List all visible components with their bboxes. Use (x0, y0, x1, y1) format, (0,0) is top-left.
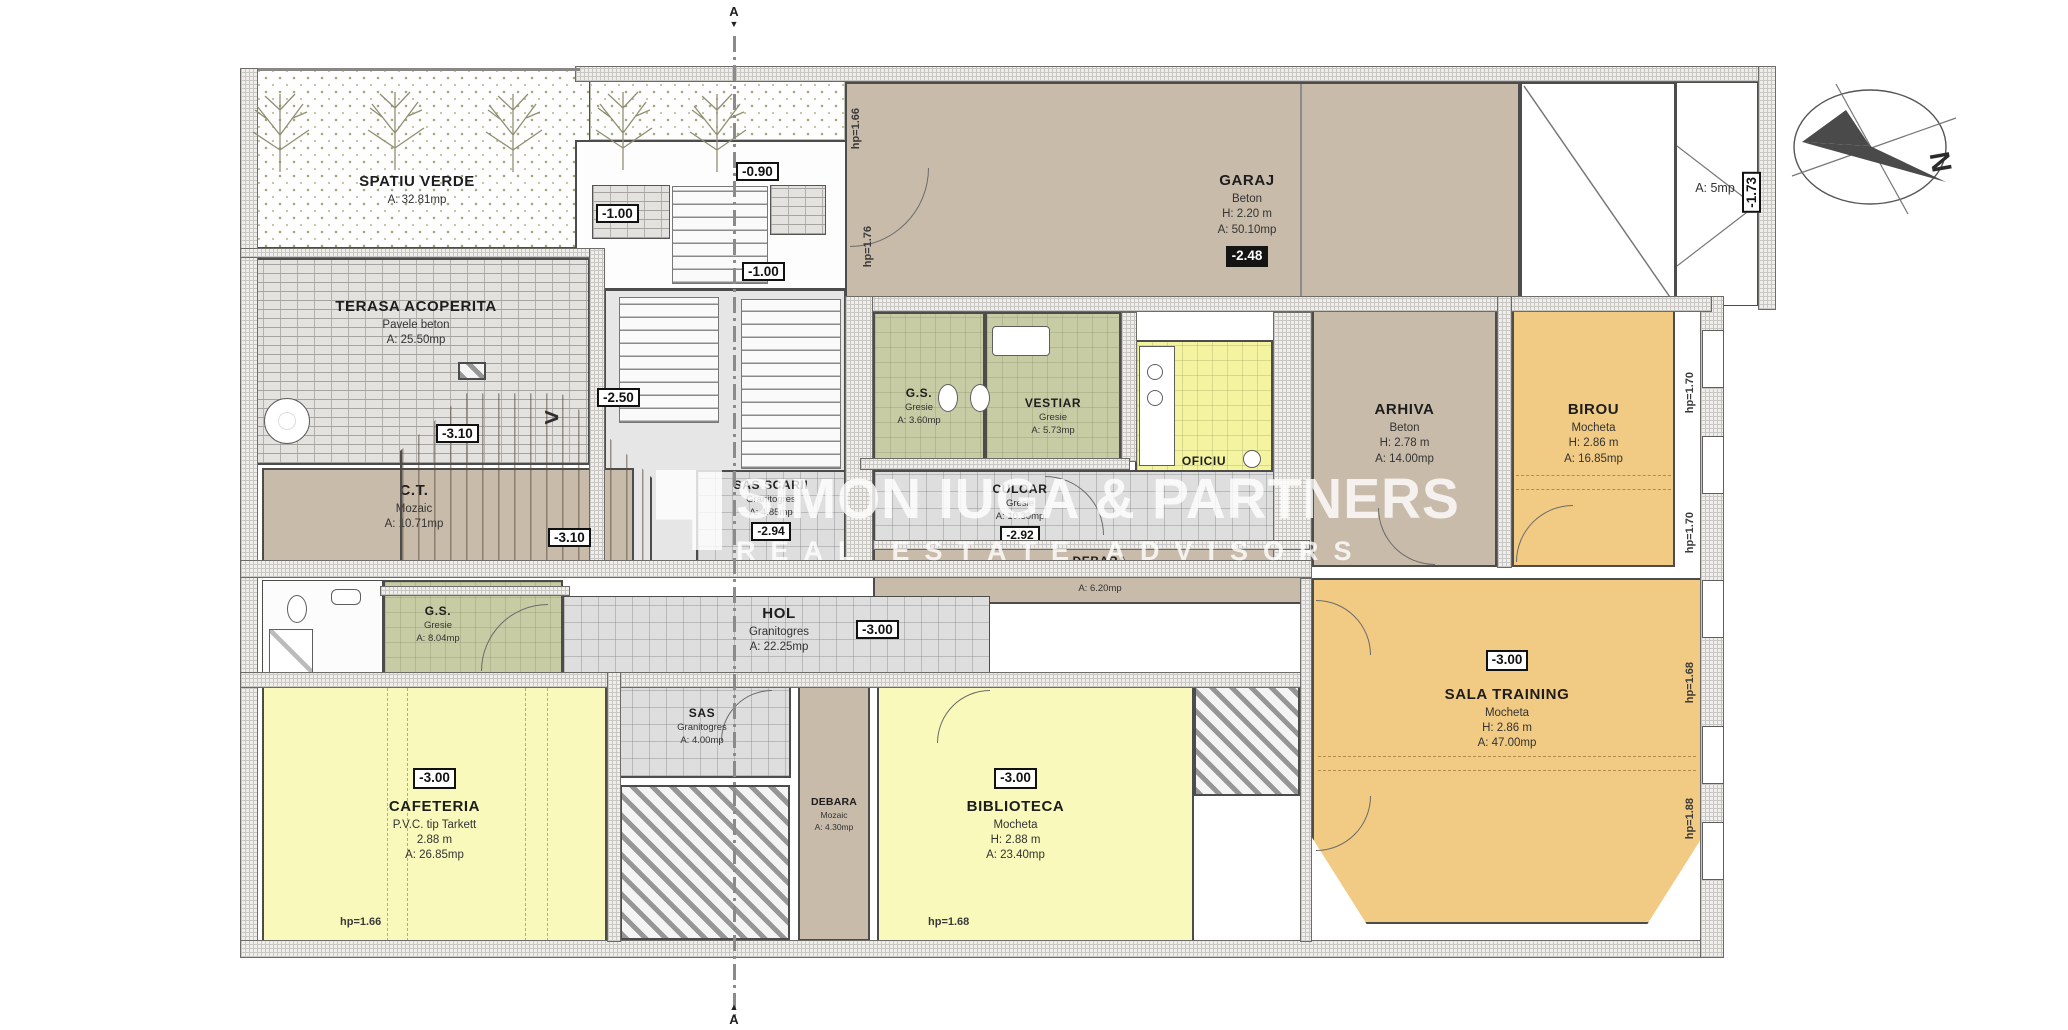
shower-icon (992, 326, 1050, 356)
partition-dashed (1318, 756, 1696, 757)
partition-dashed (1318, 770, 1696, 771)
room-finish: Granitogres (746, 494, 796, 506)
room-area: A: 16.85mp (1564, 452, 1623, 466)
room-area: A: 22.25mp (750, 640, 809, 654)
room-name: OFICIU (1182, 454, 1226, 469)
room-finish: Gresie (905, 402, 933, 414)
room-name: ARHIVA (1375, 401, 1435, 420)
wall-vestiar-oficiu (1121, 312, 1137, 462)
room-finish: Pavele beton (382, 318, 449, 332)
window (1702, 822, 1724, 880)
level-badge: -3.00 (994, 768, 1037, 789)
room-garaj: GARAJ Beton H: 2.20 m A: 50.10mp -2.48 (845, 82, 1520, 304)
room-name: BIROU (1568, 401, 1619, 420)
level-badge: -2.50 (597, 388, 640, 407)
room-height: 2.88 m (417, 833, 452, 847)
room-finish: Gresie (1039, 412, 1067, 424)
wall-oficiu-arhiva (1273, 312, 1312, 570)
wall-cafeteria-sas (607, 672, 621, 942)
room-height: H: 2.86 m (1569, 436, 1619, 450)
wall-debara-strip-north (873, 540, 1310, 550)
room-area: A: 5mp (1695, 181, 1735, 197)
room-area: A: 4.00mp (680, 735, 723, 747)
window (1702, 726, 1724, 784)
unexcavated-hatch (620, 785, 790, 940)
section-marker-top: A ▼ (722, 4, 746, 29)
room-cafeteria: -3.00 CAFETERIA P.V.C. tip Tarkett 2.88 … (262, 686, 607, 943)
brick-wall-block (770, 185, 826, 235)
room-finish: Gresie (424, 620, 452, 632)
sink-icon (1147, 364, 1163, 380)
tree-icon (350, 78, 440, 173)
wall-hall-east (845, 296, 873, 566)
room-finish: Mocheta (1571, 421, 1615, 435)
room-area: A: 25.50mp (387, 333, 446, 347)
stair-direction-arrow: > (544, 402, 559, 433)
hp-annotation: hp=1.66 (850, 108, 862, 149)
room-gs-top: G.S. Gresie A: 3.60mp (873, 312, 985, 470)
room-name: VESTIAR (1025, 396, 1081, 411)
room-finish: Beton (1389, 421, 1419, 435)
toilet-icon (970, 384, 990, 412)
level-badge: -3.10 (436, 424, 479, 443)
level-badge: -2.48 (1226, 246, 1269, 267)
room-name: DEBARA (811, 796, 857, 809)
room-sala-training: -3.00 SALA TRAINING Mocheta H: 2.86 m A:… (1312, 578, 1702, 924)
room-height: H: 2.86 m (1482, 721, 1532, 735)
room-finish: P.V.C. tip Tarkett (393, 818, 477, 832)
level-badge: -1.73 (1742, 172, 1761, 213)
partition-dashed (1516, 489, 1671, 490)
window (1702, 330, 1724, 388)
door-arc (937, 690, 990, 743)
room-biblioteca: -3.00 BIBLIOTECA Mocheta H: 2.88 m A: 23… (877, 686, 1194, 943)
room-area: A: 10.30mp (996, 511, 1045, 523)
door-arc (481, 604, 548, 671)
room-finish: Gresie (1006, 498, 1034, 510)
wall-row2-south (860, 458, 1130, 470)
section-arrow-icon: ▼ (722, 19, 746, 29)
wall-hol-south (240, 672, 1312, 688)
room-debara-small: DEBARA Mozaic A: 4.30mp (798, 686, 870, 941)
chimney-block (458, 362, 486, 380)
room-area: A: 4.85mp (749, 507, 792, 519)
wall-left (240, 68, 258, 958)
tree-icon (672, 80, 762, 175)
tree-icon (468, 80, 558, 175)
room-name: HOL (762, 605, 795, 624)
room-height: H: 2.20 m (1222, 207, 1272, 221)
room-area: A: 23.40mp (986, 848, 1045, 862)
room-height: H: 2.78 m (1380, 436, 1430, 450)
level-badge: -3.10 (548, 528, 591, 547)
wall-row3-south (240, 560, 1312, 578)
level-badge: -2.94 (751, 522, 790, 541)
level-badge: -0.90 (736, 162, 779, 181)
hp-annotation: hp=1.66 (340, 916, 381, 928)
ramp-diagonal (1522, 84, 1674, 302)
hp-annotation: hp=1.68 (928, 916, 969, 928)
compass (1790, 82, 1960, 217)
section-line (733, 36, 736, 1020)
room-area: A: 5.73mp (1031, 425, 1074, 437)
room-area: A: 26.85mp (405, 848, 464, 862)
room-area: A: 50.10mp (1218, 223, 1277, 237)
room-name: CULOAR (993, 482, 1048, 497)
hp-annotation: hp=1.76 (862, 226, 874, 267)
room-area: A: 8.04mp (416, 633, 459, 645)
garage-side-room (1520, 82, 1676, 304)
window (1702, 580, 1724, 638)
section-arrow-icon: ▲ (722, 1002, 746, 1012)
level-badge: -1.00 (742, 262, 785, 281)
hp-annotation: hp=1.68 (1684, 662, 1696, 703)
tree-icon (235, 80, 325, 175)
tree-icon (578, 78, 668, 173)
wall-biblioteca-east (1300, 578, 1312, 942)
room-hol: HOL Granitogres A: 22.25mp (563, 596, 990, 675)
room-name: GARAJ (1219, 172, 1275, 191)
toilet-icon (938, 384, 958, 412)
wall-arhiva-birou (1497, 296, 1512, 568)
hp-annotation: hp=1.88 (1684, 798, 1696, 839)
room-area: A: 32.81mp (388, 193, 447, 207)
bathroom-left (262, 580, 383, 675)
sink-icon (1147, 390, 1163, 406)
room-name: TERASA ACOPERITA (335, 298, 497, 317)
wall-bottom (240, 940, 1715, 958)
room-finish: Granitogres (749, 625, 809, 639)
table-icon (264, 398, 310, 444)
wall-spatiu-terasa (240, 248, 591, 258)
unexcavated-hatch (1194, 686, 1300, 796)
level-badge: -3.00 (413, 768, 456, 789)
level-badge: -3.00 (856, 620, 899, 639)
shower-icon (269, 629, 313, 673)
level-badge: -3.00 (1486, 650, 1529, 671)
level-badge: -1.00 (596, 204, 639, 223)
room-area: A: 6.20mp (1078, 583, 1121, 595)
room-height: H: 2.88 m (991, 833, 1041, 847)
room-name: SALA TRAINING (1445, 686, 1570, 705)
room-area: A: 47.00mp (1478, 736, 1537, 750)
wall-hall-west (589, 248, 605, 572)
room-finish: Mocheta (993, 818, 1037, 832)
toilet-icon (287, 595, 307, 623)
room-name: BIBLIOTECA (967, 798, 1065, 817)
room-name: SPATIU VERDE (359, 173, 475, 192)
room-name: CAFETERIA (389, 798, 480, 817)
room-finish: Mozaic (821, 810, 848, 821)
room-name: SAS (689, 706, 715, 721)
wall-gs-left-north (380, 586, 570, 596)
partition-dashed (1516, 475, 1671, 476)
wall-top-left-fence (240, 68, 580, 71)
room-area: A: 3.60mp (897, 415, 940, 427)
room-name: G.S. (906, 386, 932, 401)
room-finish: Beton (1232, 192, 1262, 206)
hp-annotation: hp=1.70 (1684, 512, 1696, 553)
room-area: A: 14.00mp (1375, 452, 1434, 466)
room-sas: SAS Granitogres A: 4.00mp (613, 686, 791, 778)
room-name: SAS SCARII (734, 478, 809, 493)
wall-garage-south (845, 296, 1712, 312)
room-finish: Mocheta (1485, 706, 1529, 720)
hp-annotation: hp=1.70 (1684, 372, 1696, 413)
stair-flight (741, 299, 841, 469)
room-name: G.S. (425, 604, 451, 619)
section-label: A (722, 4, 746, 19)
window (1702, 436, 1724, 494)
room-area: A: 4.30mp (815, 822, 854, 833)
room-finish: Granitogres (677, 722, 727, 734)
section-marker-bottom: ▲ A (722, 1002, 746, 1027)
sink-icon (331, 589, 361, 605)
section-label: A (722, 1012, 746, 1027)
